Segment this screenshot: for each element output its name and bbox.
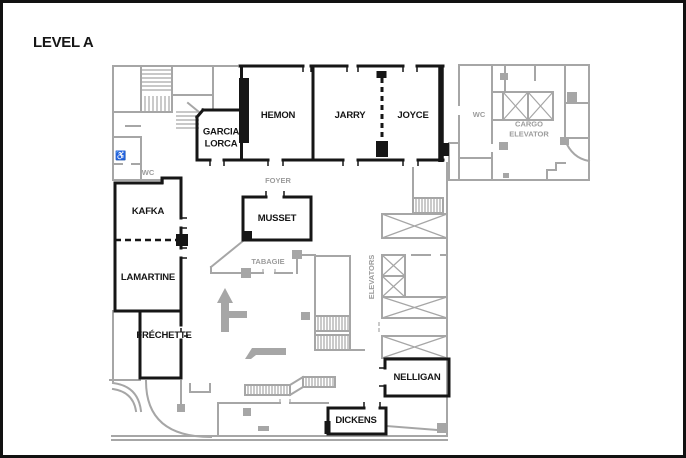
room-label-garcia-lorca: GARCIA LORCA bbox=[203, 127, 239, 152]
page-border bbox=[2, 2, 685, 457]
room-label-kafka: KAFKA bbox=[132, 206, 164, 218]
area-label-wc-west: WC bbox=[142, 168, 155, 178]
floorplan-canvas bbox=[0, 0, 686, 458]
room-label-frechette: FRÉCHETTE bbox=[136, 330, 191, 342]
area-label-tabagie: TABAGIE bbox=[251, 257, 284, 267]
room-label-joyce: JOYCE bbox=[397, 110, 428, 122]
area-label-foyer: FOYER bbox=[265, 176, 291, 186]
room-label-nelligan: NELLIGAN bbox=[394, 372, 441, 384]
room-label-hemon: HEMON bbox=[261, 110, 295, 122]
area-label-elevators: ELEVATORS bbox=[367, 255, 377, 300]
floorplan-page: LEVEL A HEMON JARRY JOYCE GARCIA LORCA K… bbox=[0, 0, 686, 458]
room-label-dickens: DICKENS bbox=[335, 415, 376, 427]
room-label-musset: MUSSET bbox=[258, 213, 296, 225]
accessible-icon: ♿ bbox=[115, 151, 126, 162]
page-title: LEVEL A bbox=[33, 34, 93, 51]
room-label-lamartine: LAMARTINE bbox=[121, 272, 175, 284]
area-label-wc-east: WC bbox=[473, 110, 486, 120]
room-label-jarry: JARRY bbox=[335, 110, 366, 122]
area-label-cargo-elevator: CARGO ELEVATOR bbox=[509, 119, 549, 139]
